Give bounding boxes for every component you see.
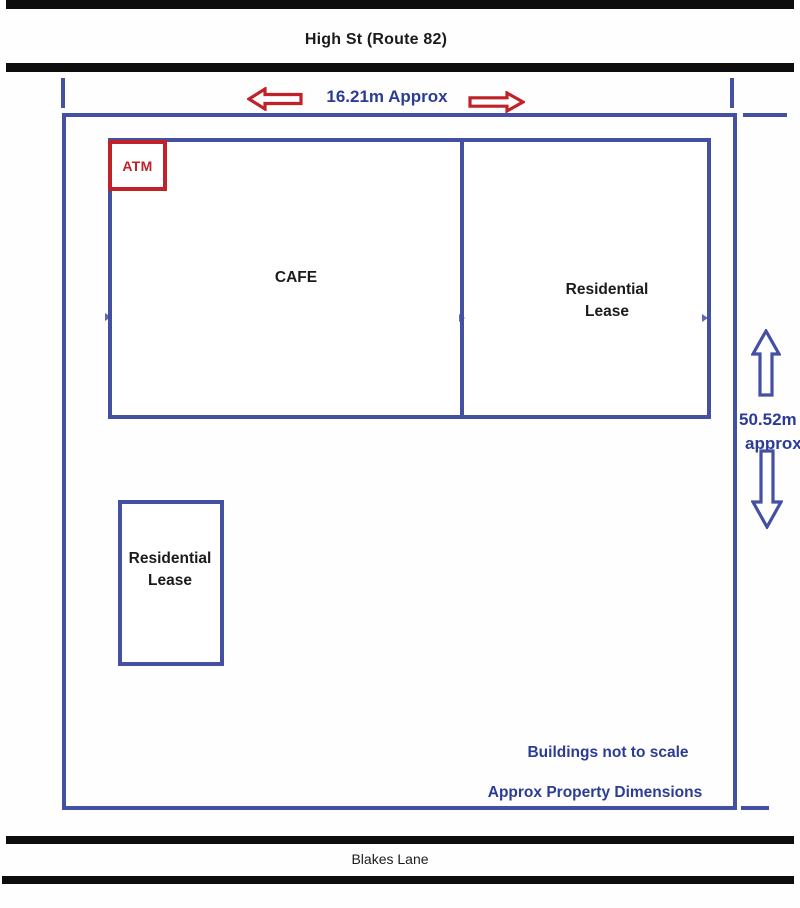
- street-label-high-st: High St (Route 82): [305, 31, 447, 49]
- dimension-tick-left: [61, 78, 65, 108]
- boundary-stub-bottom-right: [741, 806, 769, 810]
- road-edge-bottom-north: [6, 836, 794, 844]
- width-dimension-label: 16.21m Approx: [326, 87, 447, 107]
- arrow-left-icon: [247, 87, 303, 111]
- atm-label: ATM: [122, 158, 152, 174]
- height-dimension-value: 50.52m: [739, 410, 797, 430]
- atm-unit: ATM: [108, 140, 167, 191]
- wall-notch-right: [702, 314, 708, 322]
- residential-lower-line2: Lease: [129, 570, 212, 592]
- wall-notch-middle: [459, 314, 465, 322]
- residential-lease-right-label: Residential Lease: [566, 279, 649, 323]
- road-edge-top-south: [6, 63, 794, 72]
- residential-right-line2: Lease: [566, 301, 649, 323]
- arrow-up-icon: [751, 329, 781, 397]
- dimension-tick-right: [730, 78, 734, 108]
- building-party-wall: [460, 138, 464, 419]
- arrow-right-icon: [468, 91, 525, 113]
- boundary-stub-top-right: [743, 113, 787, 117]
- residential-lease-lower-label: Residential Lease: [129, 548, 212, 592]
- residential-lower-line1: Residential: [129, 548, 212, 570]
- road-edge-bottom-south: [2, 876, 794, 884]
- road-edge-top-north: [6, 0, 794, 9]
- wall-notch-left: [105, 313, 111, 321]
- note-approx-property-dimensions: Approx Property Dimensions: [488, 784, 702, 802]
- residential-right-line1: Residential: [566, 279, 649, 301]
- note-buildings-not-to-scale: Buildings not to scale: [527, 744, 688, 762]
- property-sketch-diagram: High St (Route 82) 16.21m Approx ATM CAF…: [0, 0, 800, 908]
- cafe-label: CAFE: [275, 267, 317, 289]
- arrow-down-icon: [751, 449, 783, 529]
- street-label-blakes-lane: Blakes Lane: [351, 851, 428, 867]
